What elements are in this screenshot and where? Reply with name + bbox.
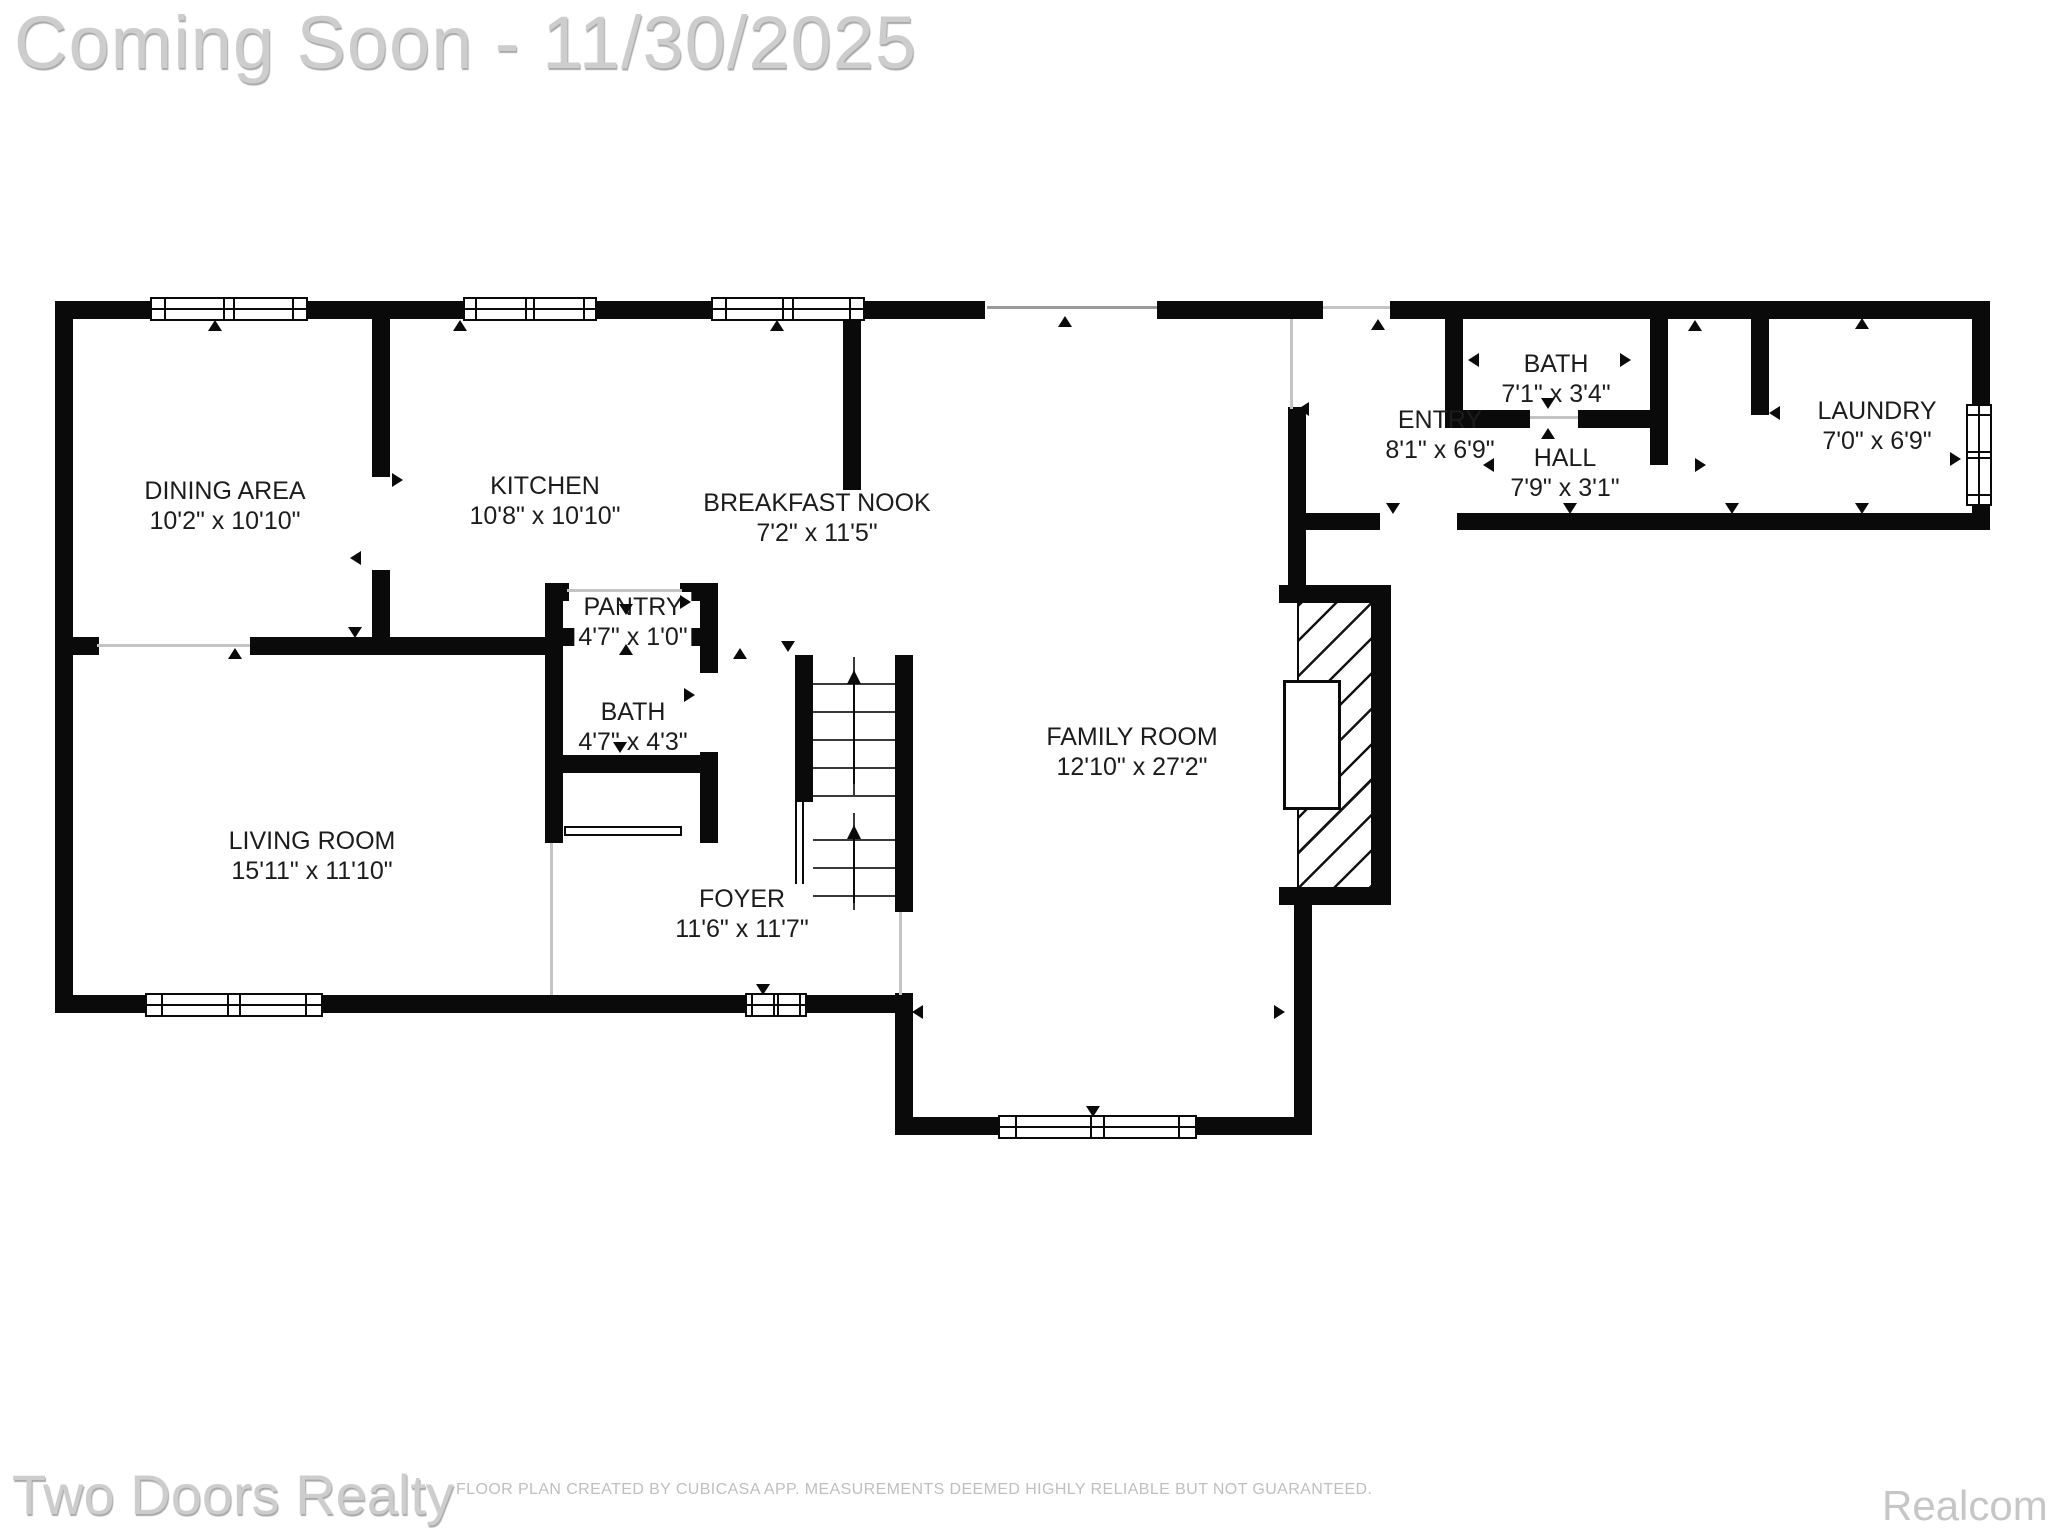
room-dims: 4'7" x 1'0"	[574, 622, 691, 652]
window	[150, 297, 308, 321]
front-door-opening-line	[1323, 306, 1390, 309]
door-arrow-icon	[613, 742, 627, 753]
room-name: ENTRY	[1385, 405, 1494, 435]
door-arrow-icon	[552, 688, 563, 702]
door-arrow-icon	[1688, 320, 1702, 331]
window	[1966, 404, 1992, 506]
door-arrow-icon	[1386, 503, 1400, 514]
room-name: LAUNDRY	[1817, 396, 1936, 426]
room-name: FAMILY ROOM	[1046, 722, 1217, 752]
door-arrow-icon	[453, 320, 467, 331]
door-arrow-icon	[1620, 353, 1631, 367]
door-arrow-icon	[60, 461, 71, 475]
door-arrow-icon	[1298, 402, 1309, 416]
room-label-bath-main: BATH 4'7" x 4'3"	[578, 697, 687, 757]
floorplan-page: { "header": { "title": "Coming Soon - 11…	[0, 0, 2048, 1536]
provider-watermark: Realcomp	[1882, 1482, 2048, 1530]
room-dims: 10'8" x 10'10"	[469, 501, 620, 531]
room-name: DINING AREA	[144, 476, 305, 506]
room-dims: 7'9" x 3'1"	[1510, 473, 1619, 503]
room-dims: 11'6" x 11'7"	[671, 914, 812, 944]
wall	[1390, 301, 1990, 319]
room-name: PANTRY	[574, 592, 691, 622]
door-arrow-icon	[1468, 353, 1479, 367]
door-arrow-icon	[1483, 458, 1494, 472]
room-dims: 7'2" x 11'5"	[703, 518, 930, 548]
room-name: KITCHEN	[469, 471, 620, 501]
wall	[1294, 905, 1312, 1135]
room-label-bath-upper: BATH 7'1" x 3'4"	[1501, 349, 1610, 409]
room-label-foyer: FOYER 11'6" x 11'7"	[671, 884, 812, 944]
room-dims: 10'2" x 10'10"	[144, 506, 305, 536]
window	[998, 1115, 1197, 1139]
room-label-entry: ENTRY 8'1" x 6'9"	[1385, 405, 1494, 465]
stair-up-arrow-icon	[853, 672, 855, 784]
room-name: LIVING ROOM	[229, 826, 396, 856]
room-label-kitchen: KITCHEN 10'8" x 10'10"	[469, 471, 620, 531]
door-arrow-icon	[208, 320, 222, 331]
wall	[545, 755, 718, 773]
wall	[1445, 319, 1463, 410]
disclaimer-text: FLOOR PLAN CREATED BY CUBICASA APP. MEAS…	[456, 1481, 1372, 1499]
wall	[250, 637, 545, 655]
room-dims: 7'1" x 3'4"	[1501, 379, 1610, 409]
window	[463, 297, 597, 321]
bath-door-opening-line	[1530, 416, 1578, 419]
wall	[700, 583, 718, 673]
room-dims: 7'0" x 6'9"	[1817, 426, 1936, 456]
wall	[795, 655, 813, 802]
door-arrow-icon	[781, 641, 795, 652]
wall	[55, 301, 73, 1013]
window	[711, 297, 865, 321]
room-label-family-room: FAMILY ROOM 12'10" x 27'2"	[1046, 722, 1217, 782]
room-dims: 15'11" x 11'10"	[229, 856, 396, 886]
door-arrow-icon	[619, 604, 633, 615]
room-dims: 8'1" x 6'9"	[1385, 435, 1494, 465]
door-arrow-icon	[348, 627, 362, 638]
door-arrow-icon	[548, 595, 559, 609]
door-arrow-icon	[350, 551, 361, 565]
wall	[1650, 319, 1668, 465]
entry-opening-line	[1290, 319, 1293, 409]
fireplace-firebox	[1283, 680, 1341, 810]
door-arrow-icon	[1753, 356, 1764, 370]
door-arrow-icon	[1725, 503, 1739, 514]
room-label-pantry: PANTRY 4'7" x 1'0"	[574, 592, 691, 652]
wall	[545, 583, 563, 843]
door-arrow-icon	[756, 984, 770, 995]
room-name: BATH	[578, 697, 687, 727]
wall	[73, 637, 99, 655]
door-arrow-icon	[60, 811, 71, 825]
room-name: BREAKFAST NOOK	[703, 488, 930, 518]
window	[745, 993, 807, 1017]
room-name: BATH	[1501, 349, 1610, 379]
door-arrow-icon	[680, 595, 691, 609]
door-arrow-icon	[1563, 503, 1577, 514]
room-label-hall: HALL 7'9" x 3'1"	[1510, 443, 1619, 503]
door-arrow-icon	[619, 644, 633, 655]
wall	[1373, 585, 1391, 905]
door-arrow-icon	[684, 688, 695, 702]
room-label-breakfast-nook: BREAKFAST NOOK 7'2" x 11'5"	[703, 488, 930, 548]
door-arrow-icon	[912, 1005, 923, 1019]
door-arrow-icon	[1058, 316, 1072, 327]
room-dims: 4'7" x 4'3"	[578, 727, 687, 757]
wall	[895, 655, 913, 912]
wall	[1288, 513, 1380, 530]
door-arrow-icon	[1695, 458, 1706, 472]
door-arrow-icon	[392, 473, 403, 487]
door-arrow-icon	[733, 648, 747, 659]
dining-living-opening-line	[97, 644, 250, 647]
door-arrow-icon	[1541, 428, 1555, 439]
door-arrow-icon	[1950, 452, 1961, 466]
wall	[843, 319, 861, 490]
wall	[1578, 410, 1668, 428]
sliding-door-line	[987, 306, 1157, 309]
coming-soon-watermark: Coming Soon - 11/30/2025	[14, 0, 917, 85]
foyer-family-opening-line	[899, 912, 902, 995]
door-arrow-icon	[1371, 319, 1385, 330]
door-arrow-icon	[228, 648, 242, 659]
wall	[372, 319, 390, 477]
door-arrow-icon	[1274, 1005, 1285, 1019]
stair-up-arrow-icon	[853, 827, 855, 903]
wall	[1157, 301, 1323, 319]
room-label-laundry: LAUNDRY 7'0" x 6'9"	[1817, 396, 1936, 456]
door-arrow-icon	[1855, 318, 1869, 329]
wall	[1457, 513, 1990, 530]
door-arrow-icon	[1086, 1106, 1100, 1117]
closet-bifold-door	[564, 826, 682, 836]
realty-watermark: Two Doors Realty	[12, 1462, 454, 1527]
door-arrow-icon	[1541, 398, 1555, 409]
door-arrow-icon	[1855, 503, 1869, 514]
room-label-living-room: LIVING ROOM 15'11" x 11'10"	[229, 826, 396, 886]
wall	[895, 993, 913, 1135]
room-name: FOYER	[671, 884, 812, 914]
room-dims: 12'10" x 27'2"	[1046, 752, 1217, 782]
window	[145, 993, 323, 1017]
wall	[1288, 407, 1306, 603]
room-label-dining-area: DINING AREA 10'2" x 10'10"	[144, 476, 305, 536]
living-foyer-boundary-line	[550, 843, 553, 995]
door-arrow-icon	[1769, 406, 1780, 420]
door-arrow-icon	[770, 320, 784, 331]
room-name: HALL	[1510, 443, 1619, 473]
